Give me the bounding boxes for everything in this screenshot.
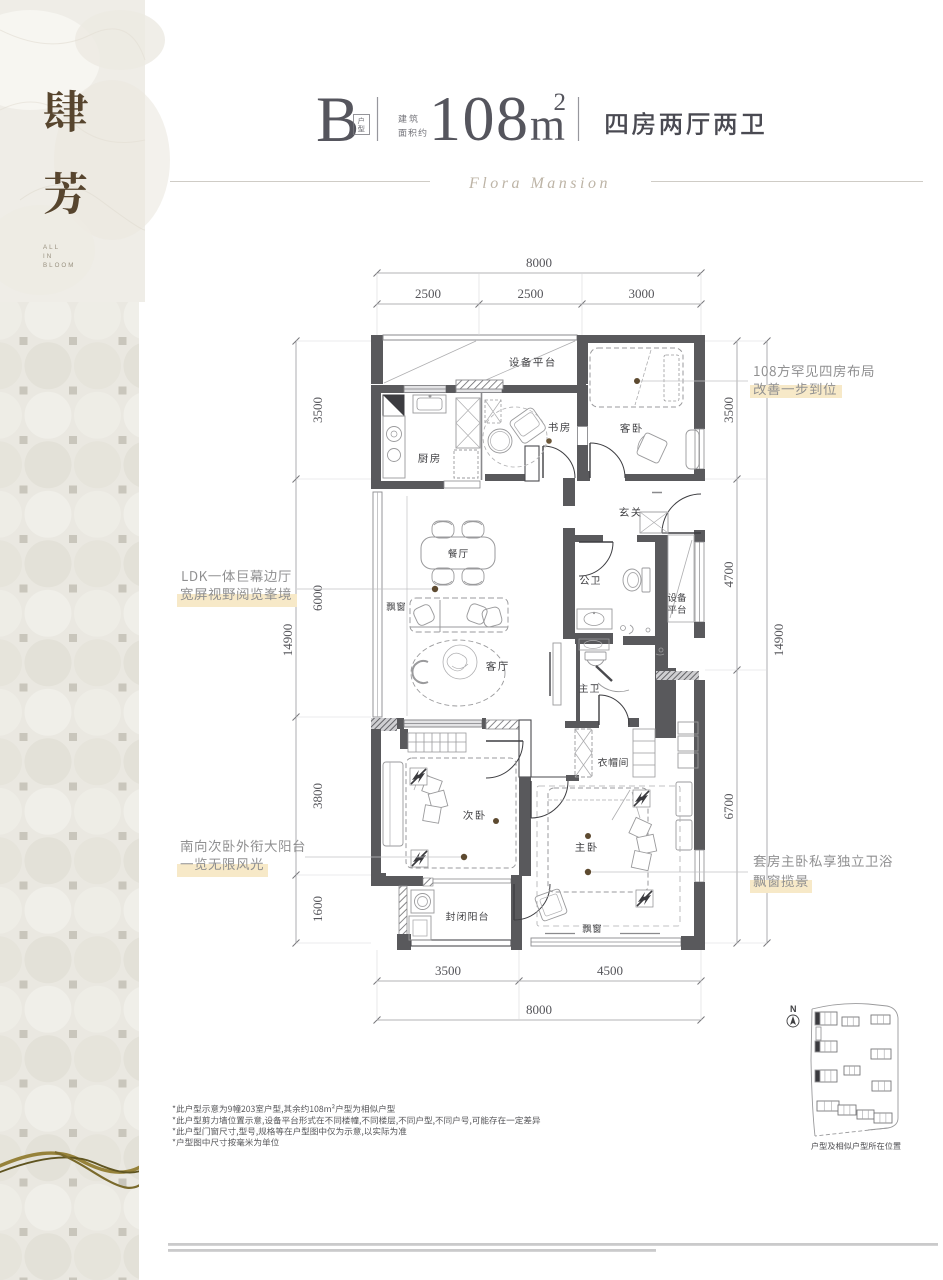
svg-text:B: B: [316, 84, 359, 156]
svg-text:2500: 2500: [415, 286, 441, 301]
svg-text:3000: 3000: [629, 286, 655, 301]
svg-text:3500: 3500: [435, 963, 461, 978]
svg-text:2: 2: [554, 89, 567, 116]
svg-text:Flora Mansion: Flora Mansion: [468, 175, 611, 192]
svg-text:1600: 1600: [310, 896, 325, 922]
svg-text:8000: 8000: [526, 255, 552, 270]
svg-text:14900: 14900: [771, 624, 786, 657]
svg-text:6700: 6700: [721, 794, 736, 820]
svg-text:4500: 4500: [597, 963, 623, 978]
svg-text:8000: 8000: [526, 1002, 552, 1017]
svg-text:IN: IN: [43, 253, 53, 260]
svg-text:4700: 4700: [721, 562, 736, 588]
svg-text:14900: 14900: [280, 624, 295, 657]
svg-text:3500: 3500: [310, 397, 325, 423]
svg-text:N: N: [790, 1004, 797, 1014]
svg-text:BLOOM: BLOOM: [43, 262, 75, 269]
svg-text:3800: 3800: [310, 783, 325, 809]
svg-text:3500: 3500: [721, 397, 736, 423]
svg-text:ALL: ALL: [43, 244, 60, 251]
svg-text:108: 108: [429, 83, 528, 154]
svg-text:2500: 2500: [518, 286, 544, 301]
